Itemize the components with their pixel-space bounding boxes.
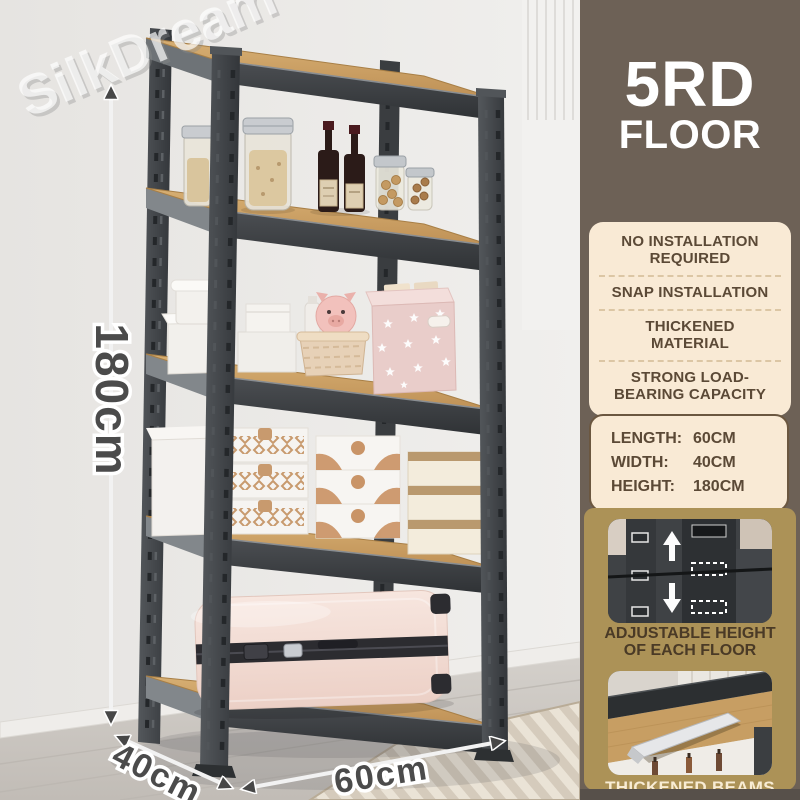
mason-jar	[241, 118, 295, 214]
white-box-stack	[238, 304, 296, 372]
detail-cards-section: ADJUSTABLE HEIGHT OF EACH FLOOR	[584, 508, 796, 790]
product-photo: 180cm 40cm 60cm SilkDream SilkDream	[0, 0, 580, 800]
striped-box-stack	[408, 452, 484, 554]
panel-bottom-strip	[580, 789, 800, 800]
marketing-panel: 5RD FLOOR NO INSTALLATION REQUIRED SNAP …	[580, 0, 800, 800]
adjustable-height-caption: ADJUSTABLE HEIGHT OF EACH FLOOR	[584, 626, 796, 660]
wall-panel	[522, 0, 580, 330]
feature-no-installation: NO INSTALLATION REQUIRED	[599, 227, 781, 277]
floor-count-line2: FLOOR	[580, 114, 800, 156]
product-listing-image: { "watermark": { "text": "SilkDream" }, …	[0, 0, 800, 800]
floor-count-line1: 5RD	[580, 54, 800, 114]
feature-load-bearing: STRONG LOAD-BEARING CAPACITY	[599, 363, 781, 411]
adjustable-height-photo	[608, 519, 772, 623]
clasp-box-stack	[316, 436, 400, 538]
size-spec-box: LENGTH:60CM WIDTH:40CM HEIGHT:180CM	[589, 414, 789, 512]
feature-list: NO INSTALLATION REQUIRED SNAP INSTALLATI…	[589, 222, 791, 416]
spec-width: WIDTH:40CM	[611, 451, 787, 475]
adjustable-height-card	[608, 519, 772, 623]
feature-thickened-material: THICKENED MATERIAL	[599, 312, 781, 362]
ornate-box-stack	[222, 428, 308, 534]
thickened-beams-card	[608, 671, 772, 775]
feature-snap-installation: SNAP INSTALLATION	[599, 278, 781, 311]
thickened-beams-photo	[608, 671, 772, 775]
height-dimension-label: 180cm	[86, 323, 138, 476]
floor-count-header: 5RD FLOOR	[580, 0, 800, 156]
spec-length: LENGTH:60CM	[611, 427, 787, 451]
spec-height: HEIGHT:180CM	[611, 475, 787, 499]
star-storage-cube	[366, 281, 456, 394]
grain-jar-small	[182, 126, 214, 206]
